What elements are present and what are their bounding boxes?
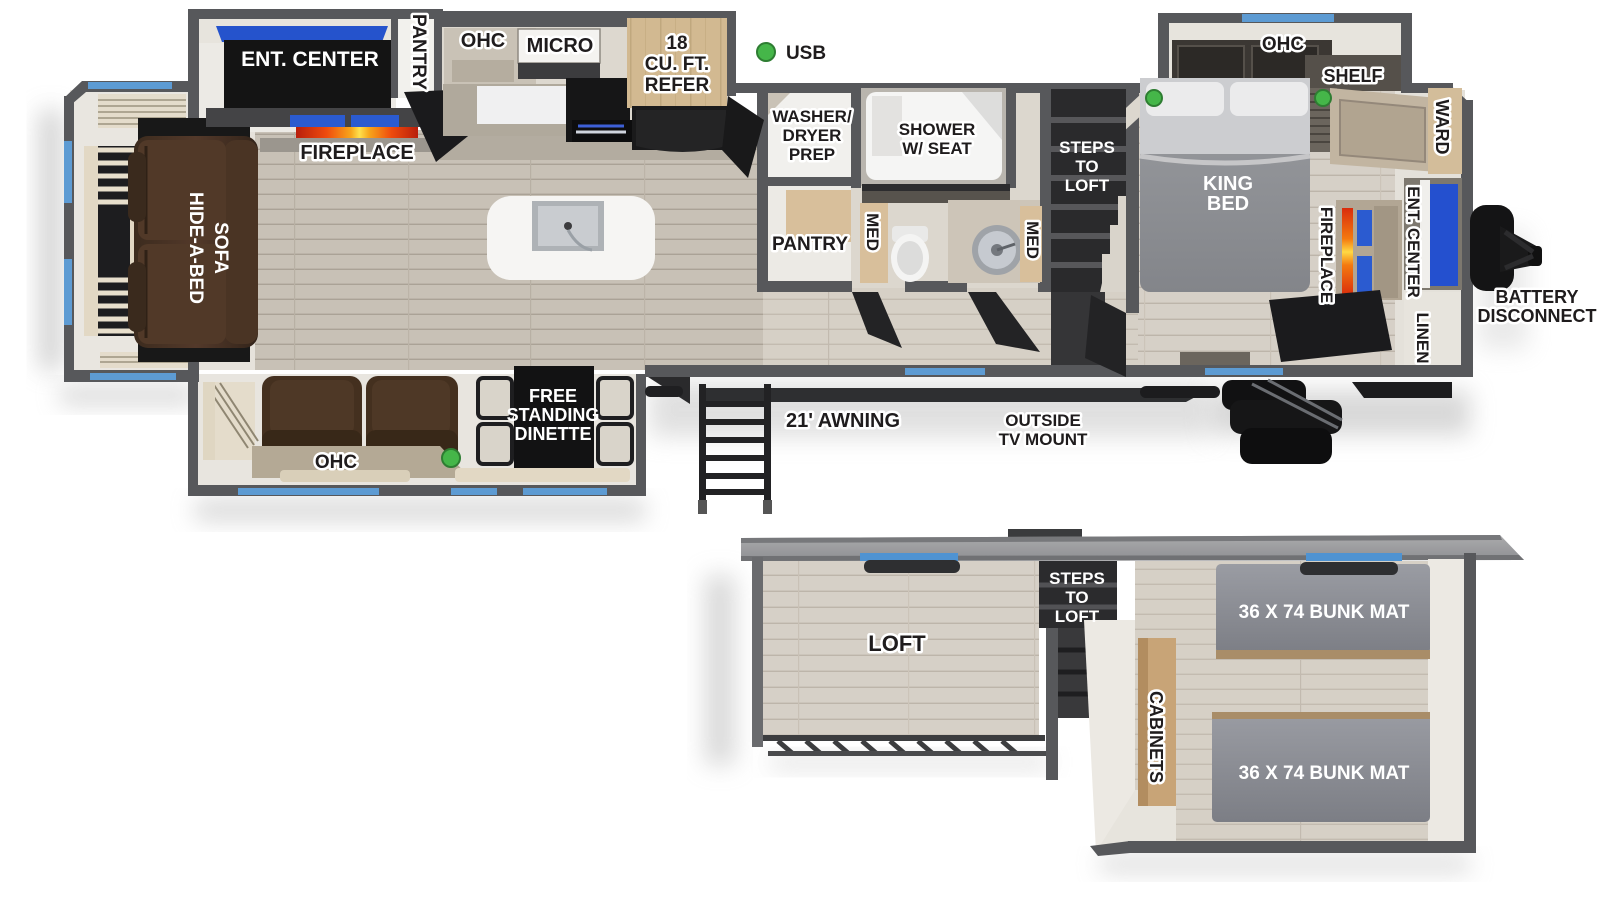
svg-text:MED: MED [863, 213, 882, 251]
svg-text:LINEN: LINEN [1413, 313, 1432, 364]
svg-text:OUTSIDE: OUTSIDE [1005, 411, 1081, 430]
svg-text:OHC: OHC [315, 452, 358, 473]
svg-text:BATTERY: BATTERY [1496, 287, 1579, 307]
svg-text:LOFT: LOFT [1055, 607, 1100, 626]
svg-text:TV MOUNT: TV MOUNT [999, 430, 1088, 449]
svg-text:LOFT: LOFT [868, 631, 926, 656]
svg-text:MICRO: MICRO [527, 35, 594, 57]
svg-text:ENT. CENTER: ENT. CENTER [241, 48, 379, 71]
svg-text:PANTRY: PANTRY [772, 234, 848, 255]
svg-text:STANDING: STANDING [507, 405, 600, 425]
svg-text:STEPS: STEPS [1049, 569, 1105, 588]
svg-text:FIREPLACE: FIREPLACE [300, 142, 413, 164]
svg-text:OHC: OHC [461, 30, 505, 52]
svg-text:SHOWER: SHOWER [899, 120, 976, 139]
svg-text:HIDE-A-BED: HIDE-A-BED [185, 192, 206, 304]
svg-text:CU. FT.: CU. FT. [645, 54, 709, 75]
svg-text:STEPS: STEPS [1059, 138, 1115, 157]
svg-text:OHC: OHC [1262, 34, 1305, 55]
svg-text:W/ SEAT: W/ SEAT [902, 139, 972, 158]
svg-text:PREP: PREP [789, 145, 835, 164]
svg-text:DINETTE: DINETTE [514, 424, 591, 444]
svg-text:21' AWNING: 21' AWNING [786, 410, 900, 432]
svg-text:CABINETS: CABINETS [1146, 691, 1166, 783]
svg-text:36 X 74 BUNK MAT: 36 X 74 BUNK MAT [1239, 763, 1410, 784]
svg-text:LOFT: LOFT [1065, 176, 1110, 195]
svg-text:TO: TO [1065, 588, 1088, 607]
svg-text:WASHER/: WASHER/ [772, 107, 852, 126]
svg-text:18: 18 [666, 33, 687, 54]
svg-text:REFER: REFER [645, 75, 710, 96]
svg-text:DRYER: DRYER [783, 126, 842, 145]
svg-text:PANTRY: PANTRY [408, 14, 429, 90]
svg-text:FIREPLACE: FIREPLACE [1317, 207, 1336, 303]
svg-text:ENT. CENTER: ENT. CENTER [1404, 186, 1423, 297]
svg-text:36 X 74 BUNK MAT: 36 X 74 BUNK MAT [1239, 602, 1410, 623]
svg-text:BED: BED [1207, 193, 1249, 215]
svg-text:FREE: FREE [529, 386, 577, 406]
svg-text:MED: MED [1023, 221, 1042, 259]
svg-text:KING: KING [1203, 173, 1253, 195]
svg-text:USB: USB [786, 43, 826, 64]
svg-text:SHELF: SHELF [1323, 66, 1382, 86]
svg-text:WARD: WARD [1432, 100, 1452, 155]
svg-text:SOFA: SOFA [210, 222, 231, 274]
svg-text:TO: TO [1075, 157, 1098, 176]
svg-text:DISCONNECT: DISCONNECT [1477, 306, 1596, 326]
